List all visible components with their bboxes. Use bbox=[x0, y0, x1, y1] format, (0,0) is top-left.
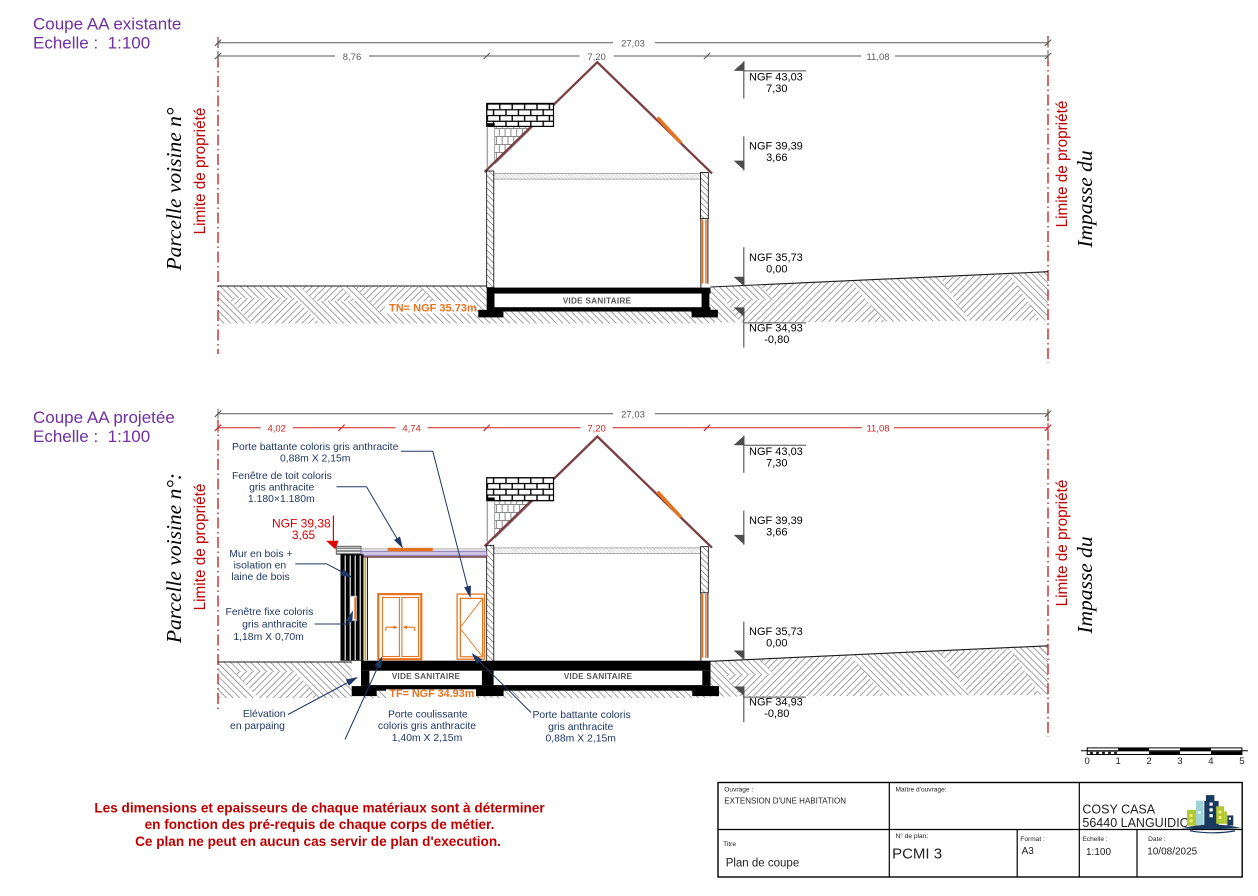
svg-text:3,66: 3,66 bbox=[766, 527, 787, 539]
svg-text:NGF 35,73: NGF 35,73 bbox=[749, 626, 803, 638]
svg-text:COSY CASA: COSY CASA bbox=[1082, 803, 1155, 817]
svg-text:TF= NGF 34.93m: TF= NGF 34.93m bbox=[389, 688, 474, 700]
svg-text:1,40m X 2,15m: 1,40m X 2,15m bbox=[392, 733, 462, 744]
svg-text:NGF 43,03: NGF 43,03 bbox=[749, 72, 803, 84]
svg-text:27,03: 27,03 bbox=[621, 410, 645, 421]
svg-text:3,66: 3,66 bbox=[766, 152, 787, 164]
svg-text:Les dimensions et epaisseurs d: Les dimensions et epaisseurs de chaque m… bbox=[94, 801, 545, 816]
svg-text:NGF 35,73: NGF 35,73 bbox=[749, 252, 803, 264]
svg-text:Date :: Date : bbox=[1148, 836, 1166, 843]
svg-text:Elévation: Elévation bbox=[243, 709, 286, 720]
svg-text:Fenêtre de toit coloris: Fenêtre de toit coloris bbox=[232, 471, 332, 482]
svg-text:gris anthracite: gris anthracite bbox=[548, 722, 613, 733]
svg-text:1: 1 bbox=[1115, 756, 1120, 767]
svg-text:NGF 39,39: NGF 39,39 bbox=[749, 141, 803, 153]
svg-text:isolation en: isolation en bbox=[234, 560, 287, 571]
svg-text:0,88m X 2,15m: 0,88m X 2,15m bbox=[280, 453, 350, 464]
svg-text:0,00: 0,00 bbox=[766, 264, 787, 276]
svg-text:TN= NGF 35.73m: TN= NGF 35.73m bbox=[389, 302, 477, 314]
svg-text:Parcelle voisine n°: Parcelle voisine n° bbox=[162, 107, 186, 271]
svg-text:PCMI 3: PCMI 3 bbox=[892, 846, 942, 863]
svg-text:Format :: Format : bbox=[1020, 836, 1045, 843]
svg-text:N° de plan:: N° de plan: bbox=[896, 832, 929, 840]
svg-text:Porte coulissante: Porte coulissante bbox=[388, 710, 468, 721]
svg-text:coloris gris anthracite: coloris gris anthracite bbox=[378, 721, 476, 732]
svg-text:Porte battante coloris: Porte battante coloris bbox=[532, 710, 630, 721]
svg-text:3,65: 3,65 bbox=[292, 528, 316, 542]
svg-text:VIDE SANITAIRE: VIDE SANITAIRE bbox=[564, 671, 633, 681]
svg-text:Titre: Titre bbox=[723, 841, 736, 848]
svg-text:1:100: 1:100 bbox=[1086, 847, 1111, 858]
svg-text:Fenêtre fixe coloris: Fenêtre fixe coloris bbox=[226, 607, 314, 618]
svg-text:Coupe AA projetée: Coupe AA projetée bbox=[33, 408, 175, 427]
svg-text:7,20: 7,20 bbox=[587, 424, 606, 435]
svg-text:5: 5 bbox=[1239, 756, 1244, 767]
svg-text:en parpaing: en parpaing bbox=[230, 721, 285, 732]
svg-text:1,18m X 0,70m: 1,18m X 0,70m bbox=[233, 632, 303, 643]
svg-text:56440 LANGUIDIC: 56440 LANGUIDIC bbox=[1082, 816, 1188, 830]
svg-text:Limite de propriété: Limite de propriété bbox=[1054, 101, 1071, 228]
svg-text:gris anthracite: gris anthracite bbox=[242, 620, 307, 631]
svg-text:EXTENSION D'UNE HABITATION: EXTENSION D'UNE HABITATION bbox=[724, 797, 846, 806]
svg-text:11,08: 11,08 bbox=[866, 424, 889, 435]
svg-text:-0,80: -0,80 bbox=[764, 334, 789, 346]
svg-text:VIDE SANITAIRE: VIDE SANITAIRE bbox=[563, 296, 632, 306]
svg-text:laine de bois: laine de bois bbox=[231, 572, 289, 583]
svg-text:11,08: 11,08 bbox=[866, 52, 889, 63]
svg-text:Echelle :: Echelle : bbox=[1082, 836, 1107, 843]
svg-text:Mur en bois +: Mur en bois + bbox=[229, 549, 292, 560]
svg-text:0: 0 bbox=[1085, 756, 1090, 767]
svg-text:2: 2 bbox=[1146, 756, 1151, 767]
svg-text:gris anthracite: gris anthracite bbox=[249, 483, 314, 494]
svg-text:10/08/2025: 10/08/2025 bbox=[1147, 847, 1197, 858]
svg-text:Plan de coupe: Plan de coupe bbox=[726, 858, 800, 870]
svg-text:Echelle : 1:100: Echelle : 1:100 bbox=[33, 427, 150, 446]
svg-text:Ouvrage :: Ouvrage : bbox=[724, 787, 753, 794]
svg-text:Echelle : 1:100: Echelle : 1:100 bbox=[33, 34, 150, 53]
svg-text:27,03: 27,03 bbox=[621, 39, 645, 50]
svg-text:en fonction des pré-requis de: en fonction des pré-requis de chaque cor… bbox=[145, 817, 495, 832]
svg-text:Parcelle voisine n°:: Parcelle voisine n°: bbox=[162, 473, 186, 644]
svg-text:A3: A3 bbox=[1022, 846, 1035, 857]
svg-text:VIDE SANITAIRE: VIDE SANITAIRE bbox=[392, 671, 461, 681]
svg-text:4: 4 bbox=[1208, 756, 1213, 767]
svg-text:Limite de propriété: Limite de propriété bbox=[192, 108, 209, 235]
svg-text:0,00: 0,00 bbox=[766, 638, 787, 650]
svg-text:7,30: 7,30 bbox=[766, 458, 787, 470]
svg-text:Porte battante coloris gris an: Porte battante coloris gris anthracite bbox=[232, 442, 399, 453]
svg-text:7,30: 7,30 bbox=[766, 83, 787, 95]
svg-text:NGF 34,93: NGF 34,93 bbox=[749, 697, 803, 709]
svg-text:Limite de propriété: Limite de propriété bbox=[1054, 480, 1071, 607]
svg-text:Coupe AA existante: Coupe AA existante bbox=[33, 15, 181, 34]
svg-text:NGF 39,39: NGF 39,39 bbox=[749, 515, 803, 527]
svg-text:Limite de propriété: Limite de propriété bbox=[192, 484, 209, 611]
svg-text:3: 3 bbox=[1177, 756, 1182, 767]
svg-text:-0,80: -0,80 bbox=[764, 708, 789, 720]
svg-text:Impasse du: Impasse du bbox=[1073, 150, 1097, 248]
svg-text:4,74: 4,74 bbox=[402, 424, 421, 435]
svg-text:NGF 43,03: NGF 43,03 bbox=[749, 446, 803, 458]
svg-text:Impasse du: Impasse du bbox=[1073, 536, 1097, 634]
svg-text:Maître d'ouvrage:: Maître d'ouvrage: bbox=[896, 787, 947, 794]
svg-text:8,76: 8,76 bbox=[343, 52, 362, 63]
svg-text:Ce plan ne peut en aucun cas s: Ce plan ne peut en aucun cas servir de p… bbox=[135, 834, 501, 849]
svg-text:1.180×1.180m: 1.180×1.180m bbox=[248, 494, 315, 505]
svg-text:7,20: 7,20 bbox=[587, 52, 606, 63]
svg-text:4,02: 4,02 bbox=[267, 424, 286, 435]
svg-text:0,88m X 2,15m: 0,88m X 2,15m bbox=[545, 733, 615, 744]
svg-text:NGF 34,93: NGF 34,93 bbox=[749, 323, 803, 335]
